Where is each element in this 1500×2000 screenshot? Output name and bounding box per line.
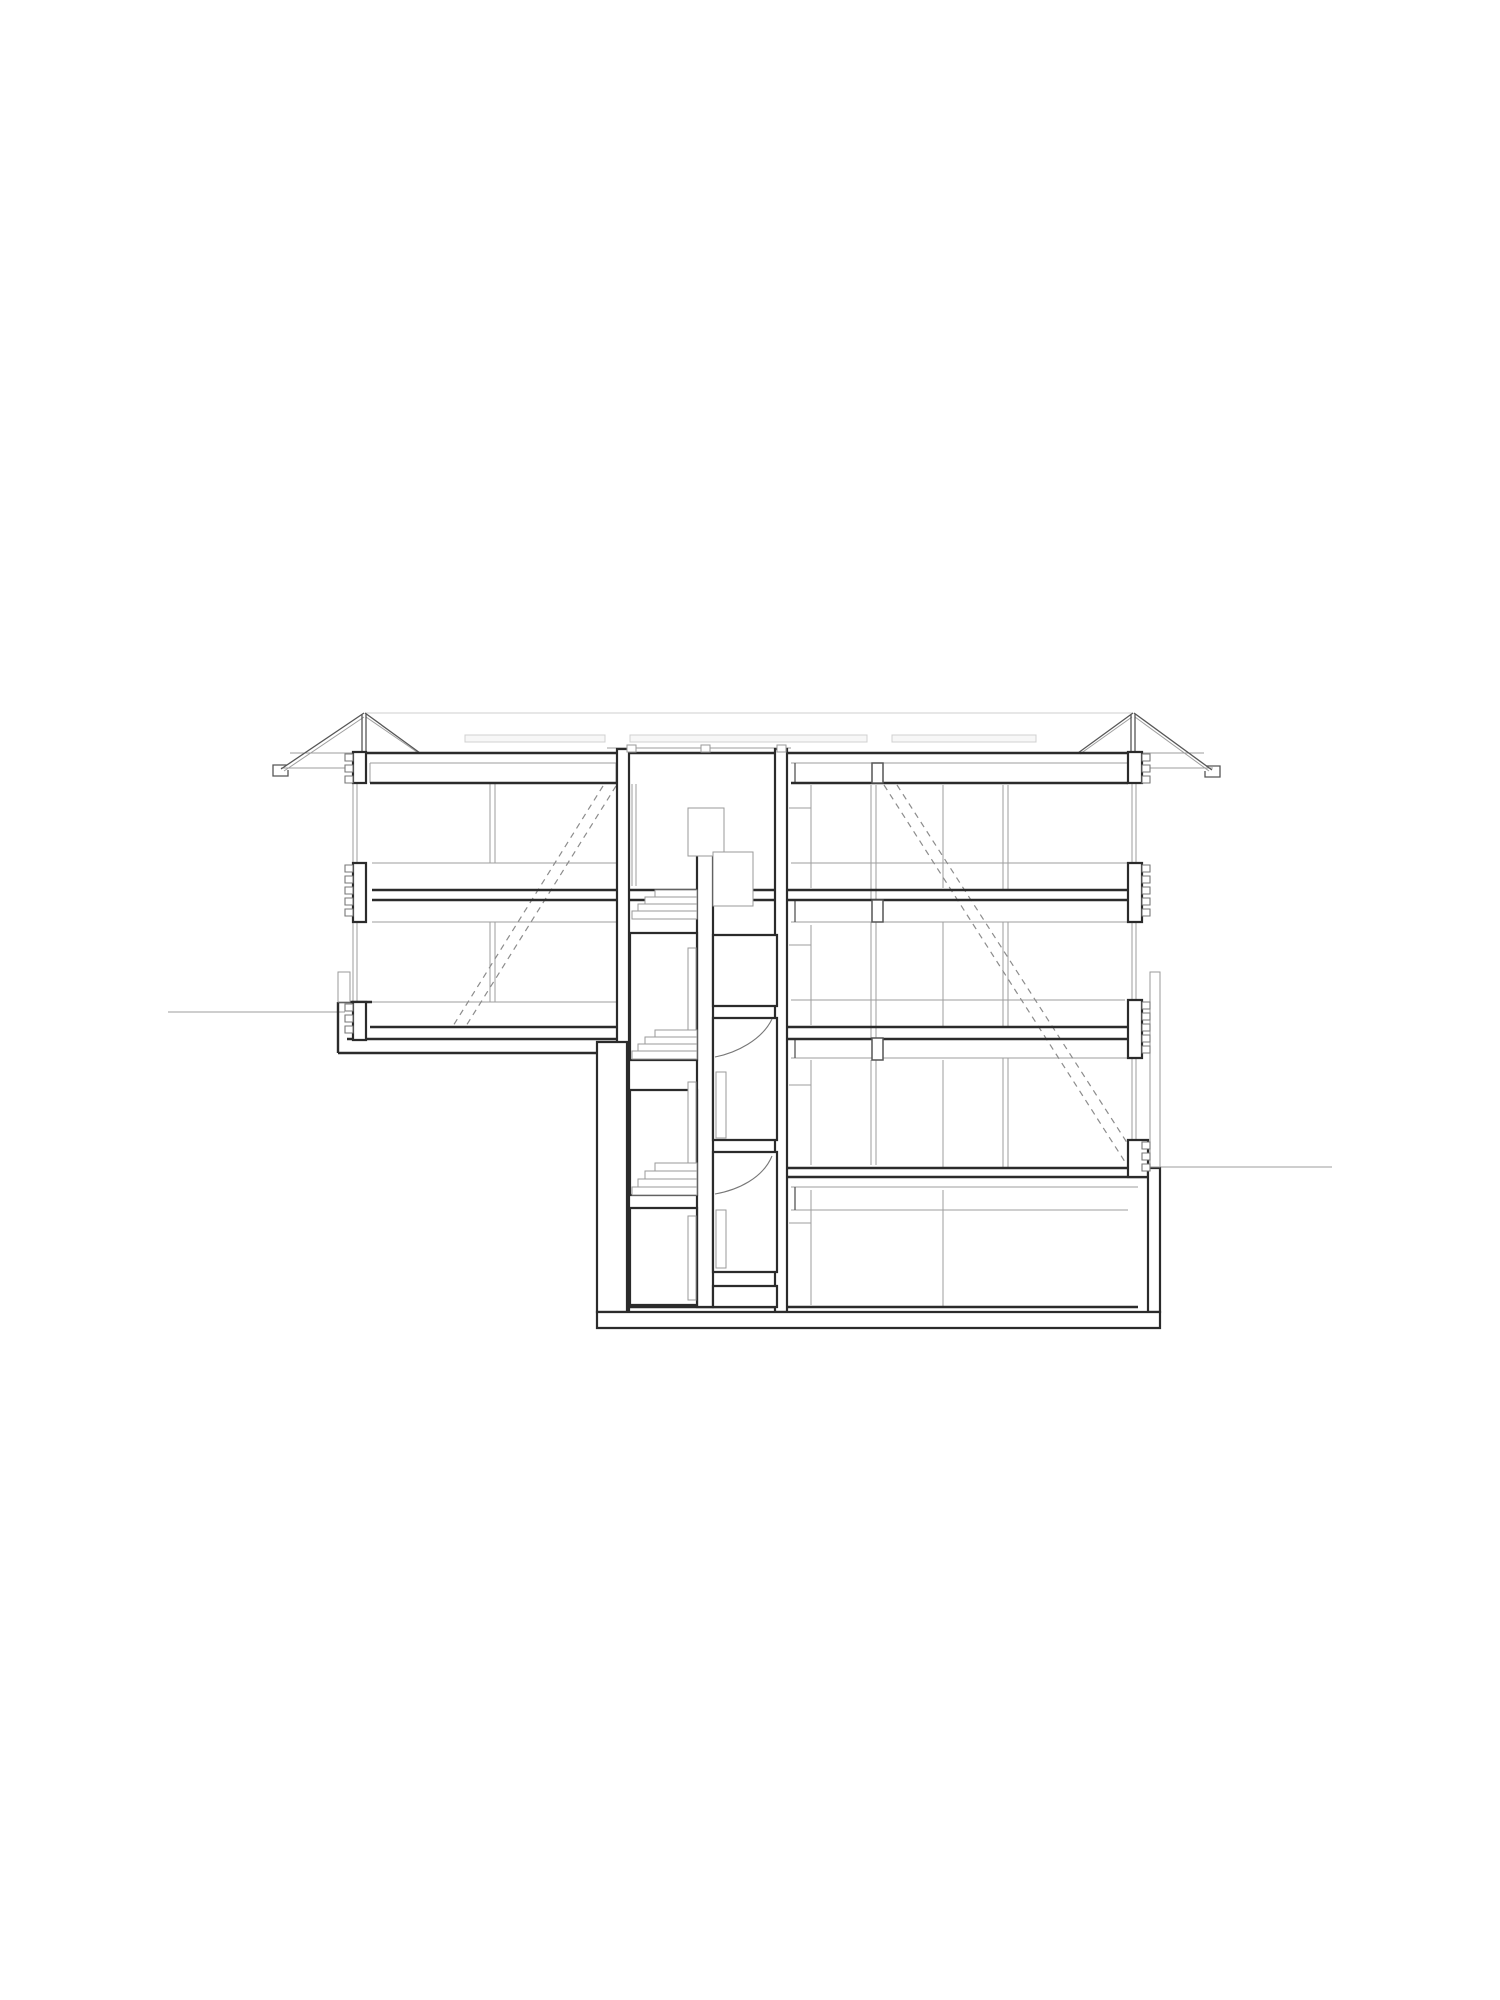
cut-wall-boxes-element xyxy=(713,1286,777,1307)
beam-piers-element xyxy=(872,763,883,783)
brick-toothing-marks-element xyxy=(1142,1013,1150,1020)
stair-flight-steps-element xyxy=(638,1179,697,1187)
light-detail-boxes-element xyxy=(627,745,636,752)
stair-flight-steps-element xyxy=(638,1044,697,1051)
brick-toothing-marks-element xyxy=(1142,765,1150,772)
cut-wall-boxes-element xyxy=(353,1002,366,1040)
light-detail-boxes-element xyxy=(688,808,724,856)
cut-wall-boxes-element xyxy=(1128,1000,1142,1058)
brick-toothing-marks-element xyxy=(1142,898,1150,905)
light-detail-boxes-element xyxy=(777,745,786,752)
stair-flight-steps-element xyxy=(632,1051,697,1059)
roof-skylight-strips-element xyxy=(630,735,867,742)
drawing-page xyxy=(0,0,1500,2000)
brick-toothing-marks-element xyxy=(1142,754,1150,761)
stair-flight-steps-element xyxy=(632,1187,697,1195)
cut-wall-boxes-element xyxy=(1128,752,1142,783)
cut-wall-boxes-element xyxy=(697,852,713,1307)
cut-wall-boxes-element xyxy=(353,863,366,922)
stair-run-dashed-lines-element xyxy=(453,786,603,1026)
cut-wall-boxes-element xyxy=(630,1208,697,1305)
brick-toothing-marks-element xyxy=(345,776,353,783)
stair-flight-steps-element xyxy=(645,1037,697,1044)
roof-monitor-lines-element xyxy=(1078,713,1133,753)
light-detail-boxes-element xyxy=(688,1216,696,1300)
light-detail-boxes-element xyxy=(716,1072,726,1138)
brick-toothing-marks-element xyxy=(345,754,353,761)
brick-toothing-marks-element xyxy=(345,898,353,905)
brick-toothing-marks-element xyxy=(1142,1153,1150,1160)
brick-toothing-marks-element xyxy=(345,1015,353,1022)
stair-run-dashed-lines xyxy=(453,785,1133,1165)
stair-run-dashed-lines-element xyxy=(466,786,616,1026)
elevation-light-lines-element xyxy=(1080,717,1132,754)
brick-toothing-marks-element xyxy=(345,876,353,883)
roof-skylight-strips-element xyxy=(892,735,1036,742)
elevation-light-lines-element xyxy=(1135,717,1209,771)
cut-wall-boxes-element xyxy=(353,752,366,783)
brick-toothing-marks-element xyxy=(1142,1035,1150,1042)
cut-wall-boxes-element xyxy=(597,1042,627,1312)
light-detail-boxes-element xyxy=(701,745,710,752)
stair-flight-steps-element xyxy=(632,911,697,919)
light-detail-boxes-element xyxy=(1150,972,1160,1167)
brick-toothing-marks-element xyxy=(1142,876,1150,883)
beam-piers-element xyxy=(872,1038,883,1060)
elevation-light-lines-element xyxy=(366,717,417,752)
beam-piers xyxy=(872,763,883,1060)
light-detail-boxes-element xyxy=(713,852,753,906)
brick-toothing-marks-element xyxy=(1142,865,1150,872)
stair-run-dashed-lines-element xyxy=(897,785,1133,1152)
cut-wall-boxes-element xyxy=(713,935,777,1006)
brick-toothing-marks-element xyxy=(1142,1164,1150,1171)
brick-toothing-marks-element xyxy=(1142,1142,1150,1149)
stair-flight-steps-element xyxy=(655,1163,697,1171)
brick-toothing-marks-element xyxy=(345,1026,353,1033)
eave-gutters-element xyxy=(273,765,288,776)
brick-toothing-marks-element xyxy=(1142,887,1150,894)
eave-gutters xyxy=(273,765,1220,777)
roof-skylight-strips-element xyxy=(465,735,605,742)
brick-toothing-marks-element xyxy=(345,909,353,916)
brick-toothing-marks-element xyxy=(1142,1002,1150,1009)
brick-toothing-marks-element xyxy=(1142,909,1150,916)
brick-toothing-marks-element xyxy=(1142,776,1150,783)
light-detail-boxes-element xyxy=(338,972,350,1002)
light-detail-boxes-element xyxy=(716,1210,726,1268)
brick-toothing-marks-element xyxy=(345,765,353,772)
brick-toothing-marks-element xyxy=(345,887,353,894)
brick-toothing-marks-element xyxy=(345,1004,353,1011)
section-svg xyxy=(0,0,1500,2000)
cut-wall-boxes-element xyxy=(597,1312,1160,1328)
beam-piers-element xyxy=(872,900,883,922)
brick-toothing-marks-element xyxy=(1142,1046,1150,1053)
brick-toothing-marks-element xyxy=(1142,1024,1150,1031)
stair-flight-steps-element xyxy=(645,1171,697,1179)
cut-wall-boxes-element xyxy=(1148,1168,1160,1312)
cut-wall-boxes-element xyxy=(1128,863,1142,922)
stair-run-dashed-lines-element xyxy=(884,785,1127,1165)
roof-monitor-lines-element xyxy=(365,713,420,753)
roof-skylight-strips xyxy=(465,735,1036,742)
brick-toothing-marks-element xyxy=(345,865,353,872)
stair-flight-steps-element xyxy=(655,1030,697,1037)
